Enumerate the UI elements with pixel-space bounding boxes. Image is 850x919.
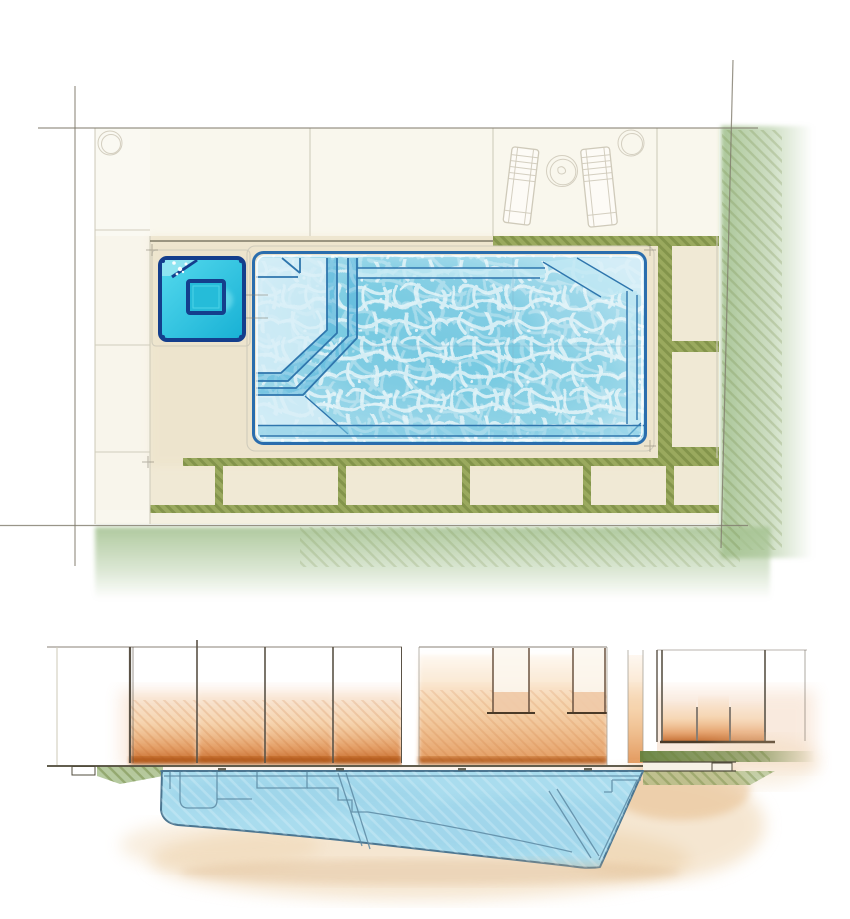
wall-gap [402, 645, 419, 765]
grass-band-hatch [640, 751, 770, 762]
right-tile-1 [672, 246, 717, 341]
wall-gap [607, 645, 628, 765]
sketch-svg [0, 0, 850, 919]
joint-v1 [215, 458, 223, 513]
top-bench-band [357, 268, 545, 278]
wall-base-shadow [419, 757, 607, 764]
pool-design-sketch [0, 0, 850, 919]
grade-step-left [72, 767, 95, 776]
joint-v3 [462, 458, 470, 513]
wall-opening [567, 648, 611, 713]
wall-opening [487, 648, 535, 713]
garden-wall [402, 645, 657, 765]
right-wall-band [627, 291, 637, 424]
joint-v2 [338, 458, 346, 513]
right-fence-wash [731, 700, 764, 741]
right-tile-2 [672, 352, 717, 447]
right-deck-edge [643, 762, 736, 771]
shell-ground-shadow [180, 859, 680, 885]
fence-base-shadow [130, 757, 402, 764]
joint-top [493, 236, 719, 246]
floor-cove [258, 426, 644, 437]
joint-v5 [666, 458, 674, 513]
fence-panel-hatch [131, 700, 401, 762]
joint-row-upper [183, 458, 719, 466]
section-view [47, 640, 820, 900]
right-fence-wash [698, 695, 729, 741]
lawn-right-hatch [722, 130, 782, 550]
lawn-bottom-hatch [300, 527, 740, 567]
joint-right-low [658, 447, 719, 458]
joint-row-lower [150, 505, 719, 513]
pool-section-shell [160, 768, 680, 885]
joint-right-mid [658, 341, 719, 352]
grass-wedge-left-hatch [97, 766, 163, 784]
wall-gap [643, 645, 657, 765]
left-tile-column [95, 128, 150, 524]
joint-v4 [583, 458, 591, 513]
plan-view [0, 60, 813, 599]
upper-deck-area [95, 128, 719, 236]
wall-column-wash [628, 655, 643, 763]
right-fence-wash [663, 700, 696, 741]
